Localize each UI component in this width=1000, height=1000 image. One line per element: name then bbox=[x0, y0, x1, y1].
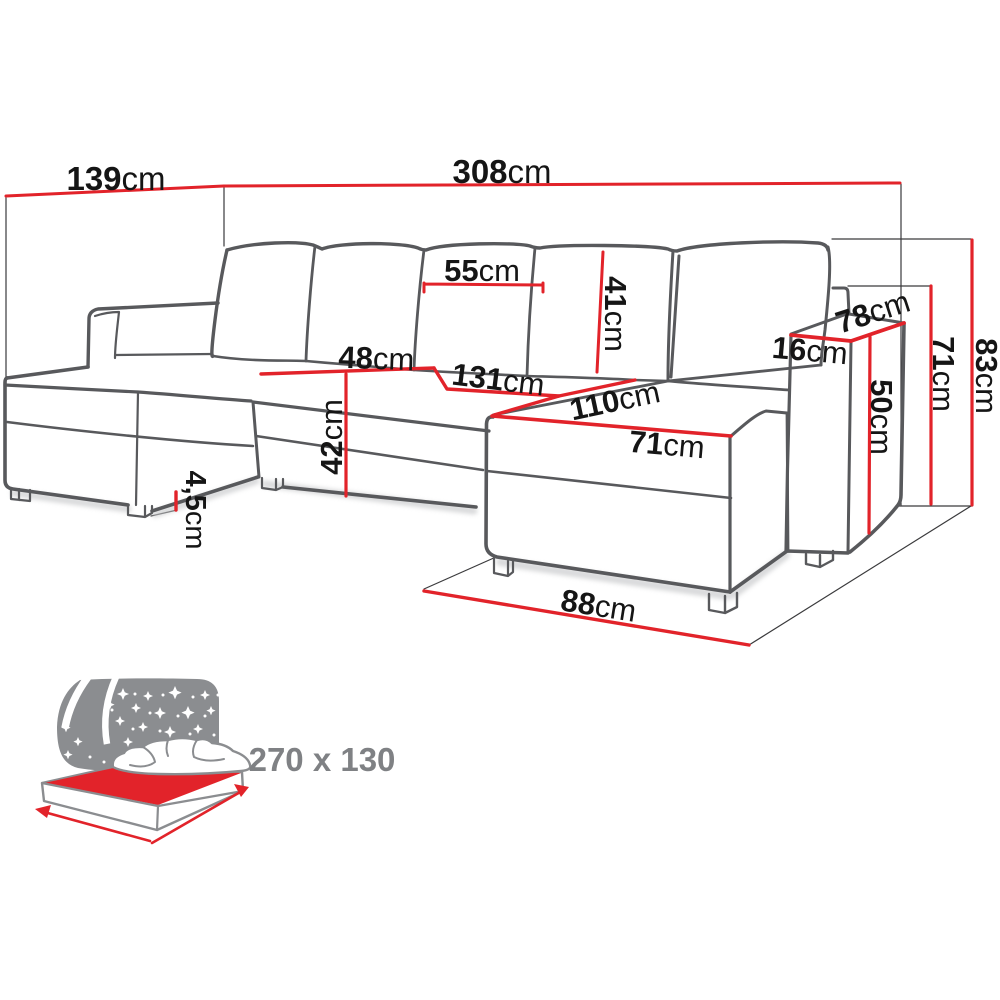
svg-text:131cm: 131cm bbox=[450, 357, 547, 403]
svg-text:139cm: 139cm bbox=[66, 160, 165, 197]
svg-text:71cm: 71cm bbox=[926, 336, 961, 412]
svg-text:110cm: 110cm bbox=[567, 374, 664, 427]
svg-text:55cm: 55cm bbox=[444, 253, 520, 288]
svg-text:71cm: 71cm bbox=[628, 424, 707, 465]
svg-text:83cm: 83cm bbox=[969, 338, 1000, 414]
svg-text:50cm: 50cm bbox=[864, 379, 899, 455]
svg-text:88cm: 88cm bbox=[558, 582, 638, 628]
svg-text:42cm: 42cm bbox=[314, 399, 349, 475]
svg-text:308cm: 308cm bbox=[452, 153, 551, 190]
svg-text:270 x 130: 270 x 130 bbox=[249, 741, 396, 778]
svg-text:4,5cm: 4,5cm bbox=[179, 471, 211, 550]
svg-text:41cm: 41cm bbox=[598, 276, 633, 352]
svg-text:48cm: 48cm bbox=[338, 340, 415, 378]
svg-text:16cm: 16cm bbox=[771, 330, 850, 371]
